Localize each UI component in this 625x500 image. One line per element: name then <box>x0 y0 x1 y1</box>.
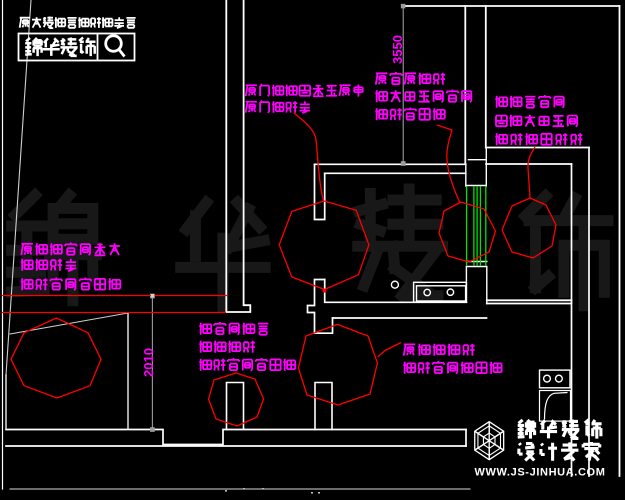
svg-text:3550: 3550 <box>390 35 405 64</box>
svg-text:2010: 2010 <box>141 348 156 377</box>
svg-text:WWW.JS-JINHUA.COM: WWW.JS-JINHUA.COM <box>475 466 606 478</box>
